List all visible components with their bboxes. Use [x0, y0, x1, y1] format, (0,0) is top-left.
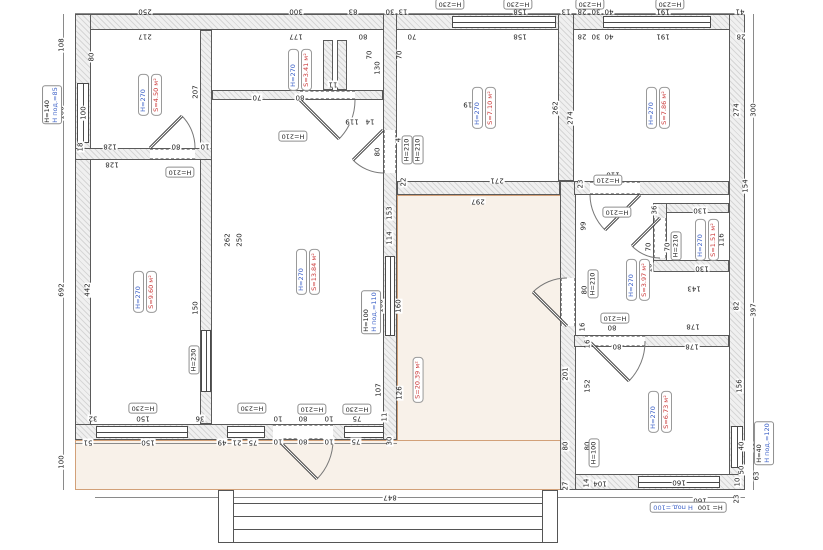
dimension-label: 80 — [298, 415, 309, 422]
dimension-label: 10 — [324, 438, 335, 445]
dimension-label: 40 — [604, 8, 615, 15]
window-height-label: H=100H под.=110 — [361, 290, 381, 334]
height-label: H=230 — [576, 0, 605, 10]
dimension-label: 70 — [367, 50, 374, 61]
dimension-label: 13 — [398, 8, 409, 15]
room-label: H=270S=3.41 м² — [288, 49, 312, 91]
dimension-label: 130 — [375, 60, 382, 75]
window — [603, 16, 711, 28]
dimension-label: 41 — [735, 8, 746, 15]
dimension-label: 80 — [607, 324, 618, 331]
height-label: H=230 — [343, 403, 372, 414]
room-area-label: S=6.73 м² — [661, 391, 672, 433]
dimension-label: 160 — [396, 298, 403, 313]
dimension-label: 13 — [561, 8, 572, 15]
dimension-label: 18 — [78, 142, 85, 153]
dimension-label: 14 — [365, 118, 376, 125]
door-arc-icon — [353, 160, 383, 173]
room-height-label: H=270 — [133, 271, 144, 313]
dimension-label: 75 — [351, 438, 362, 445]
door-opening — [384, 130, 396, 173]
dimension-label: 11 — [328, 81, 339, 88]
terrace-area — [397, 195, 564, 474]
window — [452, 16, 556, 28]
dimension-label: 10 — [324, 415, 335, 422]
height-label: H=230 — [188, 346, 199, 375]
dimension-label: 160 — [671, 479, 686, 486]
wall — [75, 14, 91, 440]
room-height-label: H=270 — [626, 259, 637, 301]
terrace-area-label: S=20.39 м² — [412, 357, 423, 403]
dimension-label: 126 — [397, 385, 404, 400]
dimension-label: 14 — [584, 478, 591, 489]
dimension-label: 274 — [734, 102, 741, 117]
stairs-side — [542, 490, 558, 543]
room-height-label: H=270 — [288, 49, 299, 91]
window-height-text: H под.=120 — [765, 423, 772, 463]
dimension-label: 75 — [352, 415, 363, 422]
dimension-label: 28 — [577, 33, 588, 40]
dimension-label: 80 — [298, 438, 309, 445]
dimension-label: 83 — [348, 8, 359, 15]
dimension-label: 82 — [734, 301, 741, 312]
window-height-label: H= 100H под.=100 — [649, 501, 726, 512]
dimension-label: 153 — [387, 205, 394, 220]
height-label: H=210 — [279, 130, 308, 141]
dimension-label: 692 — [59, 282, 66, 297]
room-height-label: H=270 — [695, 219, 706, 261]
dimension-label: 104 — [592, 480, 607, 487]
dimension-label: 108 — [59, 37, 66, 52]
window — [96, 426, 188, 438]
dimension-label: 51 — [83, 439, 94, 446]
terrace-area — [75, 440, 564, 490]
room-area-label: S=1.51 м² — [708, 219, 719, 261]
dimension-label: 63 — [754, 471, 761, 482]
dimension-label: 191 — [655, 33, 670, 40]
dimension-label: 80 — [171, 143, 182, 150]
height-label: H=210 — [601, 312, 630, 323]
room-label: H=270S=9.60 м² — [133, 271, 157, 313]
dimension-label: 16 — [580, 322, 587, 333]
window — [227, 426, 265, 438]
dimension-label: 178 — [684, 343, 699, 350]
room-label: H=270S=6.73 м² — [648, 391, 672, 433]
dimension-line — [95, 497, 745, 498]
dimension-label: 100 — [59, 454, 66, 469]
stairs-step — [234, 529, 542, 530]
dimension-label: 16 — [585, 339, 592, 350]
window — [344, 426, 384, 438]
dimension-label: 80 — [563, 441, 570, 452]
window-height-label: H=140H под.=85 — [42, 85, 62, 124]
dimension-label: 397 — [751, 302, 758, 317]
dimension-label: 114 — [387, 230, 394, 245]
room-height-label: H=270 — [648, 391, 659, 433]
wall — [383, 14, 397, 440]
dimension-label: 70 — [252, 94, 263, 101]
dimension-label: 178 — [685, 323, 700, 330]
window — [201, 330, 211, 392]
door-arc-icon — [629, 341, 645, 381]
room-label: H=270S=13.84 м² — [296, 249, 320, 295]
room-height-label: H=270 — [296, 249, 307, 295]
window-height-text: H=140 — [44, 87, 51, 122]
stairs-side — [218, 490, 234, 543]
stairs-step — [234, 503, 542, 504]
door-arc-icon — [589, 341, 629, 381]
room-area-label: S=7.86 м² — [659, 87, 670, 129]
dimension-label: 10 — [273, 415, 284, 422]
dimension-label: 128 — [104, 161, 119, 168]
dimension-label: 297 — [470, 198, 485, 205]
dimension-label: 116 — [719, 232, 726, 247]
dimension-label: 150 — [193, 300, 200, 315]
room-label: H=270S=3.97 м² — [626, 259, 650, 301]
dimension-label: 30 — [387, 436, 394, 447]
dimension-label: 10 — [200, 143, 211, 150]
window-height-text: H под.=110 — [372, 292, 379, 332]
dimension-label: 27 — [563, 481, 570, 492]
dimension-label: 70 — [646, 242, 653, 253]
room-label: H=270S=1.51 м² — [695, 219, 719, 261]
dimension-label: 207 — [193, 84, 200, 99]
height-label: H=210 — [412, 136, 423, 165]
dimension-label: 80 — [358, 33, 369, 40]
dimension-label: 80 — [612, 343, 623, 350]
dimension-label: 300 — [751, 102, 758, 117]
dimension-label: 262 — [225, 232, 232, 247]
door-opening — [150, 149, 195, 159]
dimension-label: 70 — [397, 50, 404, 61]
room-height-label: H=270 — [472, 87, 483, 129]
wall — [653, 260, 729, 272]
height-label: H=210 — [594, 174, 623, 185]
dimension-label: 152 — [585, 378, 592, 393]
room-area-label: S=7.10 м² — [485, 87, 496, 129]
dimension-label: 40 — [604, 33, 615, 40]
height-label: H=210 — [298, 403, 327, 414]
room-label: H=270S=7.10 м² — [472, 87, 496, 129]
dimension-label: 217 — [137, 33, 152, 40]
room-label: H=270S=7.86 м² — [646, 87, 670, 129]
dimension-label: 11 — [382, 412, 389, 423]
dimension-label: 271 — [489, 177, 504, 184]
dimension-label: 80 — [295, 94, 306, 101]
dimension-label: 100 — [81, 105, 88, 120]
floor-plan: 2503008330131581328304019141217177807015… — [0, 0, 823, 550]
window-height-label: H=40H под.=120 — [754, 421, 774, 465]
dimension-label: 21 — [232, 439, 243, 446]
dimension-label: 250 — [237, 232, 244, 247]
dimension-label: 49 — [217, 439, 228, 446]
dimension-label: 154 — [743, 178, 750, 193]
dimension-label: 75 — [248, 439, 259, 446]
dimension-label: 10 — [273, 438, 284, 445]
dimension-label: 130 — [692, 207, 707, 214]
window-height-text: H под.=100 — [651, 503, 695, 510]
dimension-label: 50 — [739, 465, 746, 476]
dimension-label: 36 — [652, 205, 659, 216]
dimension-label: 80 — [89, 52, 96, 63]
door-opening — [300, 91, 355, 99]
dimension-label: 119 — [344, 118, 359, 125]
window-height-text: H=40 — [756, 423, 763, 463]
dimension-label: 23 — [734, 494, 741, 505]
dimension-label: 36 — [195, 415, 206, 422]
window-height-text: H под.=85 — [53, 87, 60, 122]
dimension-label: 107 — [376, 382, 383, 397]
dimension-label: 262 — [553, 100, 560, 115]
door-arc-icon — [182, 116, 195, 148]
dimension-label: 250 — [137, 8, 152, 15]
stairs-step — [234, 516, 542, 517]
stairs-step — [234, 542, 542, 543]
wall — [397, 181, 560, 195]
dimension-label: 143 — [686, 285, 701, 292]
door-opening — [561, 278, 575, 326]
dimension-label: 28 — [736, 33, 747, 40]
dimension-label: 40 — [739, 441, 746, 452]
dimension-label: 150 — [135, 415, 150, 422]
dimension-label: 23 — [578, 179, 585, 190]
room-area-label: S=9.60 м² — [146, 271, 157, 313]
dimension-label: 128 — [102, 143, 117, 150]
dimension-label: 442 — [85, 282, 92, 297]
room-label: H=270S=4.50 м² — [138, 74, 162, 116]
height-label: H=210 — [670, 232, 681, 261]
room-area-label: S=4.50 м² — [151, 74, 162, 116]
dimension-label: 80 — [375, 147, 382, 158]
window-height-text: H=100 — [363, 292, 370, 332]
dimension-label: 150 — [140, 439, 155, 446]
height-label: H=230 — [238, 402, 267, 413]
dimension-label: 10 — [735, 477, 742, 488]
room-area-label: S=3.41 м² — [301, 49, 312, 91]
dimension-label: 300 — [288, 8, 303, 15]
height-label: H=210 — [587, 270, 598, 299]
height-label: H=210 — [603, 206, 632, 217]
height-label: H=210 — [166, 166, 195, 177]
height-label: H=230 — [656, 0, 685, 10]
height-label: H=210 — [401, 136, 412, 165]
dimension-label: 30 — [385, 8, 396, 15]
dimension-line — [63, 14, 64, 440]
room-area-label: S=3.97 м² — [639, 259, 650, 301]
dimension-label: 70 — [407, 33, 418, 40]
wall — [337, 40, 347, 90]
dimension-label: 22 — [401, 177, 408, 188]
wall — [729, 14, 745, 490]
dimension-label: 847 — [382, 494, 397, 501]
door-arc-icon — [589, 341, 629, 381]
height-label: H=230 — [436, 0, 465, 10]
dimension-line — [753, 14, 754, 490]
dimension-label: 30 — [591, 33, 602, 40]
dimension-label: 156 — [737, 378, 744, 393]
dimension-label: 130 — [694, 265, 709, 272]
room-height-label: H=270 — [646, 87, 657, 129]
dimension-label: 32 — [88, 415, 99, 422]
height-label: H=230 — [129, 402, 158, 413]
dimension-label: 177 — [288, 33, 303, 40]
wall — [558, 14, 574, 181]
height-label: H=100 — [588, 439, 599, 468]
window — [385, 256, 395, 336]
dimension-label: 99 — [581, 221, 588, 232]
dimension-label: 201 — [563, 366, 570, 381]
dimension-label: 274 — [568, 110, 575, 125]
area-label: S=20.39 м² — [412, 357, 423, 403]
room-height-label: H=270 — [138, 74, 149, 116]
dimension-label: 158 — [512, 33, 527, 40]
height-label: H=230 — [504, 0, 533, 10]
window-height-text: H= 100 — [696, 503, 725, 510]
room-area-label: S=13.84 м² — [309, 249, 320, 295]
